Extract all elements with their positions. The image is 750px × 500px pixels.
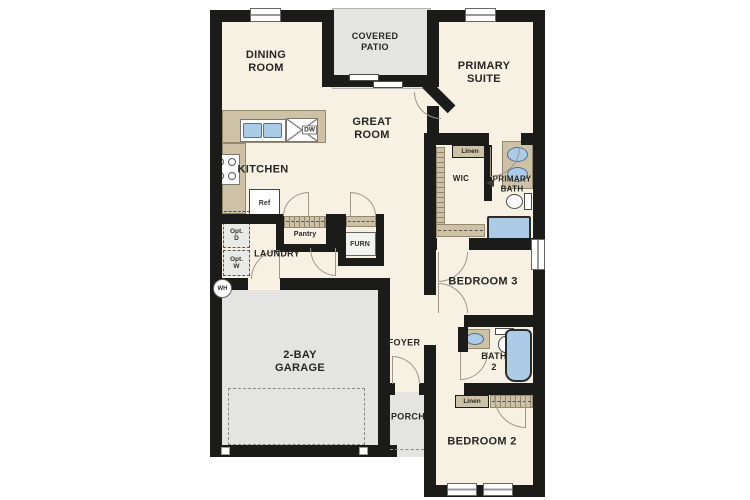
furn-shelf-dash bbox=[348, 221, 374, 222]
wall bbox=[210, 214, 280, 224]
primary-toilet-tank bbox=[524, 193, 532, 210]
wall bbox=[424, 145, 436, 295]
linen-closet-top: Linen bbox=[452, 145, 488, 158]
kitchen-sink-basin-left bbox=[243, 123, 262, 138]
room-label-primary-bath: PRIMARY BATH bbox=[493, 174, 532, 193]
garage-door-jamb bbox=[221, 447, 230, 455]
room-label-garage: 2-BAY GARAGE bbox=[275, 349, 325, 375]
pantry-shelf bbox=[284, 216, 326, 228]
wall bbox=[378, 383, 395, 395]
linen-bottom-label: Linen bbox=[463, 398, 480, 405]
vanity-sink-icon bbox=[466, 333, 484, 345]
kitchen-sink-basin-right bbox=[263, 123, 282, 138]
window bbox=[250, 8, 281, 22]
exterior-ground bbox=[200, 457, 424, 500]
room-label-dining-room: DINING ROOM bbox=[246, 49, 286, 75]
garage-door-dashed-outline bbox=[228, 388, 365, 445]
room-label-foyer: FOYER bbox=[388, 338, 421, 349]
water-heater-label: WH bbox=[218, 286, 228, 292]
wall bbox=[458, 327, 468, 352]
stove-burner bbox=[228, 172, 236, 180]
dishwasher-label: DW bbox=[302, 125, 317, 134]
stove-burner bbox=[228, 158, 236, 166]
wic-shelf-dash bbox=[438, 230, 483, 231]
opt-washer-label: Opt. W bbox=[230, 256, 243, 270]
linen-top-label: Linen bbox=[461, 148, 478, 155]
window bbox=[447, 483, 477, 496]
floor-plan: DW Ref Linen Linen FURN Opt. D Op bbox=[0, 0, 750, 500]
bath2-tub-icon bbox=[505, 329, 532, 382]
room-label-primary-suite: PRIMARY SUITE bbox=[458, 60, 510, 86]
room-label-porch: PORCH bbox=[391, 412, 425, 423]
room-label-covered-patio: COVERED PATIO bbox=[352, 31, 399, 53]
window bbox=[531, 239, 545, 270]
room-label-pantry: Pantry bbox=[294, 231, 316, 239]
primary-toilet-bowl bbox=[506, 194, 523, 209]
primary-bath-arrow-icon bbox=[486, 179, 494, 187]
window bbox=[465, 8, 496, 22]
wall bbox=[464, 315, 545, 327]
sliding-door-panel bbox=[373, 81, 403, 88]
wall bbox=[280, 278, 390, 290]
room-label-laundry: LAUNDRY bbox=[254, 249, 300, 260]
linen-closet-bottom: Linen bbox=[455, 395, 489, 408]
dishwasher-icon: DW bbox=[286, 118, 318, 142]
furnace-label: FURN bbox=[350, 241, 370, 248]
room-label-bedroom3: BEDROOM 3 bbox=[448, 275, 517, 288]
wall bbox=[338, 258, 384, 266]
wall bbox=[210, 445, 397, 457]
room-label-kitchen: KITCHEN bbox=[238, 163, 289, 176]
wall bbox=[424, 345, 436, 497]
sliding-door-panel bbox=[349, 74, 379, 81]
room-label-bedroom2: BEDROOM 2 bbox=[447, 435, 516, 448]
refrigerator-icon: Ref bbox=[249, 189, 280, 217]
wall bbox=[419, 383, 436, 395]
wall bbox=[424, 238, 437, 250]
wall bbox=[378, 278, 390, 457]
cabinet-dashed-line bbox=[224, 211, 250, 212]
garage-door-jamb bbox=[359, 447, 368, 455]
pantry-shelf-dash bbox=[286, 221, 324, 222]
wall bbox=[464, 383, 545, 395]
refrigerator-label: Ref bbox=[259, 200, 271, 207]
opt-dryer-label: Opt. D bbox=[230, 228, 243, 242]
wall bbox=[210, 10, 222, 457]
optional-dryer-box: Opt. D bbox=[223, 222, 250, 248]
wall bbox=[521, 133, 545, 145]
room-label-great-room: GREAT ROOM bbox=[352, 116, 391, 142]
porch-edge-dashed bbox=[390, 449, 424, 450]
window bbox=[483, 483, 513, 496]
room-label-wic: WIC bbox=[453, 174, 469, 184]
room-label-bath2: BATH 2 bbox=[481, 351, 507, 373]
water-heater-icon: WH bbox=[213, 279, 232, 298]
wall bbox=[424, 133, 489, 145]
furnace-icon: FURN bbox=[344, 232, 376, 256]
optional-washer-box: Opt. W bbox=[223, 250, 250, 276]
